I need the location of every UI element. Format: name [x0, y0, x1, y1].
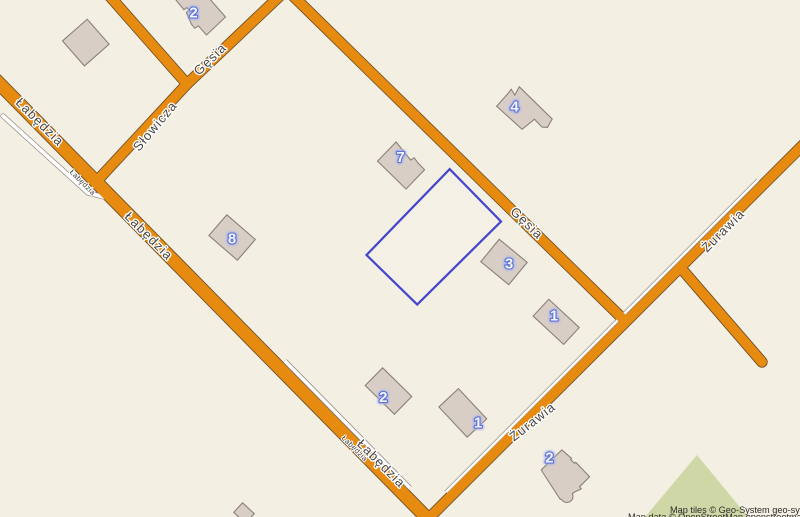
svg-text:1: 1: [550, 308, 558, 325]
svg-text:2: 2: [189, 5, 197, 22]
svg-text:2: 2: [545, 450, 553, 467]
svg-text:4: 4: [510, 99, 519, 116]
svg-text:3: 3: [505, 256, 513, 273]
svg-text:Map data © OpenStreetMap opens: Map data © OpenStreetMap openstreetmap.o…: [628, 512, 800, 517]
svg-text:1: 1: [474, 415, 482, 432]
svg-text:8: 8: [228, 231, 236, 248]
svg-text:7: 7: [396, 149, 404, 166]
svg-text:2: 2: [379, 389, 387, 406]
